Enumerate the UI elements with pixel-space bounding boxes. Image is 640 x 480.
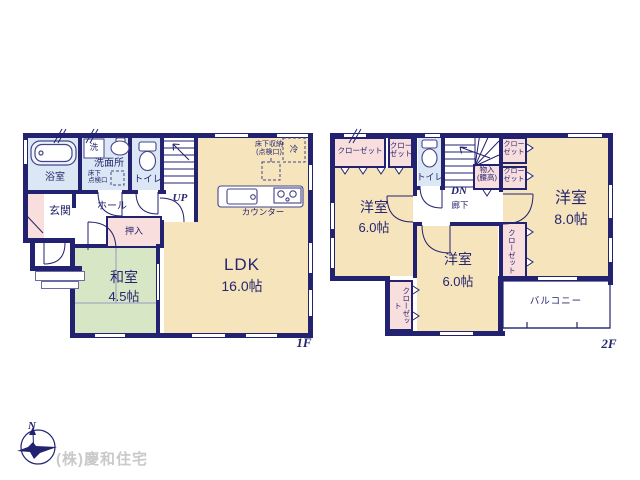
balcony-label: バルコニー (522, 297, 590, 308)
underfloor-hatch-label: 床下 点検口 (88, 170, 112, 185)
room-east-size: 8.0帖 (538, 212, 604, 228)
underfloor-storage-label: 床下収納 (点検口) (246, 141, 292, 157)
room-oshiire-label: 押入 (116, 226, 152, 236)
room-east-label: 洋室 (538, 190, 604, 208)
closet-right-vert-label: クローゼット (507, 227, 515, 275)
stairs-up-label: UP (166, 192, 194, 204)
room-tatami-label: 和室 (94, 270, 154, 286)
room-entrance-label: 玄関 (44, 205, 76, 217)
room-washroom-label: 洗面所 (88, 158, 130, 169)
laundry-label: 洗 (86, 143, 102, 153)
room-bathroom-label: 浴室 (40, 172, 70, 183)
sliding-door-lines (157, 264, 160, 300)
room-south-size: 6.0帖 (428, 275, 488, 290)
company-name: (株)慶和住宅 (56, 448, 196, 469)
floorplan-page: 浴室 洗 洗面所 床下 点検口 トイレ UP 玄関 ホール 押入 和室 4.5帖… (0, 0, 640, 480)
compass-n-label: N (24, 420, 40, 432)
room-west-size: 6.0帖 (344, 221, 404, 236)
stairs-up-icon (164, 141, 194, 183)
washbasin-icon (111, 138, 129, 155)
compass-icon (17, 427, 57, 464)
floor1-label: 1F (290, 336, 318, 351)
room-south-label: 洋室 (428, 252, 488, 268)
bathtub-icon (31, 141, 76, 165)
closet-wide-label: クローゼット (334, 147, 386, 155)
closet-right-mid-label: クロー ゼット (502, 168, 526, 184)
toilet-icon-2f (422, 140, 437, 167)
room-hall-label: ホール (93, 201, 131, 212)
room-toilet-2f-label: トイレ (416, 172, 444, 182)
closet-right-top-label: クロー ゼット (502, 141, 526, 157)
fridge-label: 冷 (287, 145, 301, 155)
floorplan-linework (0, 0, 640, 480)
toilet-icon-1f (139, 142, 156, 171)
floor2-label: 2F (595, 337, 623, 352)
room-west-label: 洋室 (344, 200, 404, 216)
room-toilet-1f-label: トイレ (133, 175, 163, 186)
stairs-down-label: DN (447, 185, 471, 197)
room-ldk-size: 16.0帖 (206, 279, 278, 295)
counter-label: カウンター (240, 208, 286, 218)
corridor-label: 廊下 (447, 201, 473, 211)
storage-waist-label: 物入 (腰高) (472, 166, 502, 183)
closet-small-label: クロー ゼット (389, 142, 413, 159)
closet-left-vert-label: クローゼット (393, 284, 410, 328)
room-tatami-size: 4.5帖 (94, 290, 154, 305)
kitchen-counter-icon (218, 186, 303, 207)
room-ldk-label: LDK (208, 255, 276, 274)
